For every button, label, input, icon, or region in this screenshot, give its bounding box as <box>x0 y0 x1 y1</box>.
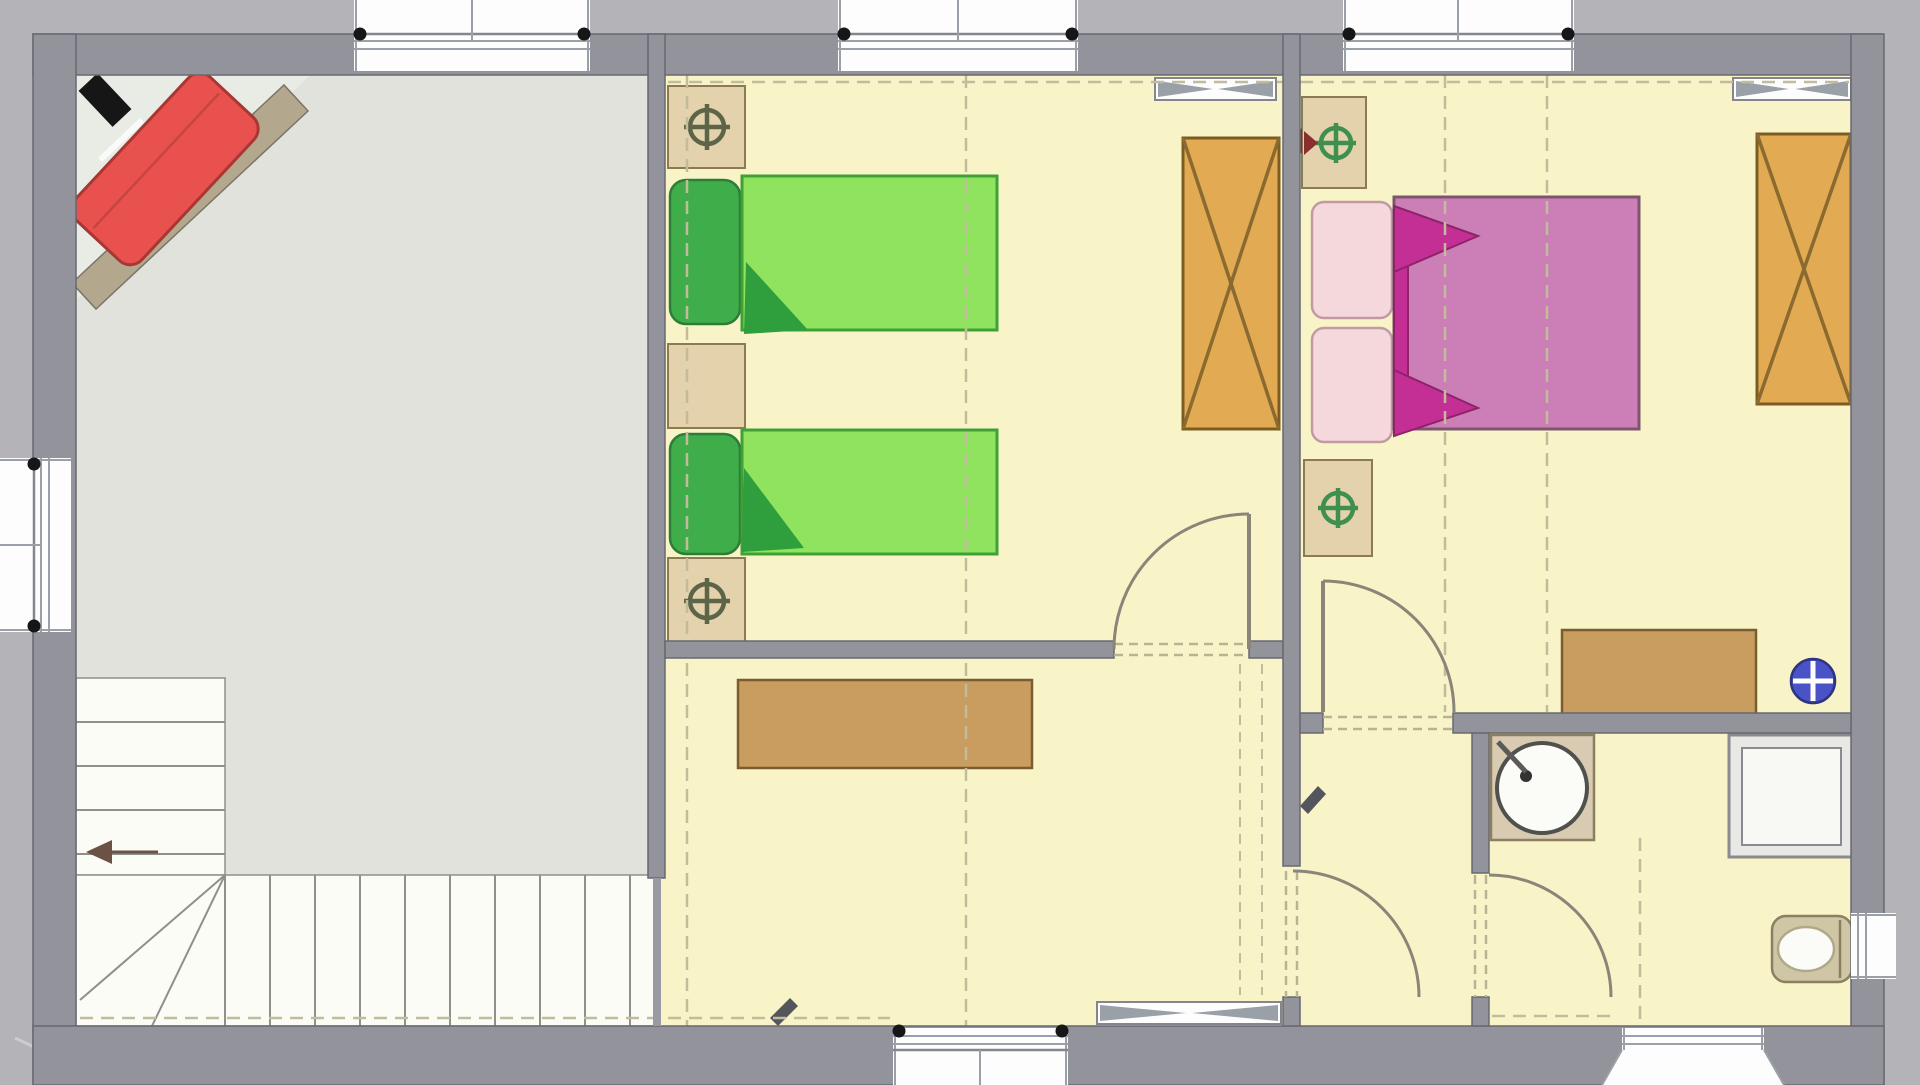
wall-bathroom-left <box>1472 733 1489 873</box>
wall-center-vertical <box>1283 34 1300 866</box>
bed-pillow <box>1312 202 1392 318</box>
nightstand <box>668 344 745 428</box>
wall-bedroom-left-south <box>665 641 1114 658</box>
desk <box>1562 630 1756 714</box>
skylight-icon <box>1097 1002 1281 1024</box>
window-top-3 <box>1343 0 1575 71</box>
bed-pillow <box>670 434 740 554</box>
wall-landing-bedroom <box>648 34 665 878</box>
wall-bedroom-left-south <box>1249 641 1283 658</box>
window-top-1 <box>354 0 591 71</box>
window-bottom-2 <box>1602 1028 1784 1085</box>
wall-center-stub <box>1283 997 1300 1026</box>
floor-plan-canvas <box>0 0 1920 1085</box>
window-top-2 <box>838 0 1079 71</box>
sideboard <box>738 680 1032 768</box>
ceiling-light-icon <box>1791 659 1835 703</box>
window-bottom-1 <box>893 1025 1069 1085</box>
bed-pillow <box>670 180 740 324</box>
floor-plan-drawing <box>0 0 1920 1085</box>
wall-bathroom-stub <box>1472 997 1489 1026</box>
bed-pillow <box>1312 328 1392 442</box>
window-right <box>1851 913 1896 979</box>
wall-bedroom-right-south <box>1453 713 1851 733</box>
stair-upper-flight <box>76 678 225 875</box>
stair-edge-rail <box>653 878 661 1026</box>
toilet-icon <box>1772 916 1852 982</box>
window-left <box>0 458 71 633</box>
shower-tray <box>1742 748 1841 845</box>
wall-bedroom-right-south <box>1300 713 1323 733</box>
wardrobe <box>1183 138 1279 429</box>
wardrobe <box>1757 134 1851 404</box>
